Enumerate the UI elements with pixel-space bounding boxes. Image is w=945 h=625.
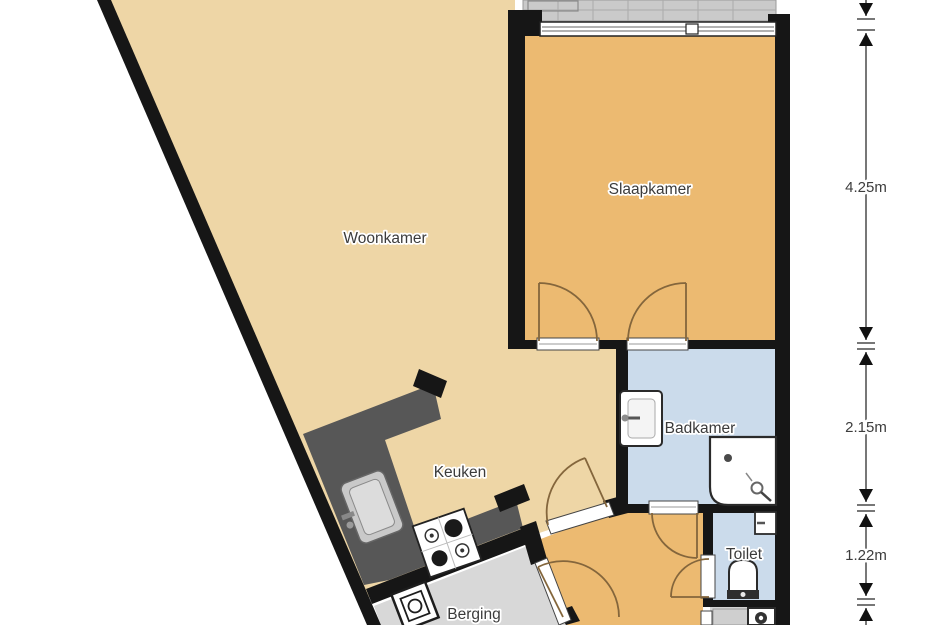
- right-outer-wall: [775, 14, 790, 625]
- arrow-down-icon: [859, 327, 873, 340]
- room-label-berging: Berging: [447, 606, 500, 623]
- balcony-icon: [523, 0, 776, 21]
- slaapkamer-left-wall: [508, 10, 525, 349]
- slaapkamer-top-corner-wall: [508, 10, 542, 36]
- room-label-slaapkamer: Slaapkamer: [609, 181, 692, 198]
- dimension-label-2: 2.15m: [845, 419, 887, 436]
- room-label-woonkamer: Woonkamer: [343, 230, 426, 247]
- toilet-bowl-icon: [727, 560, 759, 599]
- appliance-icon: [713, 608, 775, 625]
- shower-icon: [710, 437, 776, 505]
- window-icon: [540, 22, 776, 36]
- room-label-badkamer: Badkamer: [665, 420, 736, 437]
- dimension-label-3: 1.22m: [845, 547, 887, 564]
- floorplan-page: Woonkamer Slaapkamer Keuken Badkamer Toi…: [0, 0, 945, 625]
- bathroom-sink-icon: [620, 391, 662, 446]
- dimension-label-1: 4.25m: [845, 179, 887, 196]
- toilet-door-threshold: [701, 555, 715, 598]
- toilet-bottom-wall: [703, 600, 790, 607]
- arrow-up-icon: [859, 514, 873, 527]
- arrow-up-icon: [859, 608, 873, 621]
- arrow-down-icon: [859, 489, 873, 502]
- arrow-down-icon: [859, 3, 873, 16]
- window-handle: [686, 24, 698, 34]
- washok-door-threshold: [701, 611, 712, 625]
- hand-basin-icon: [755, 512, 776, 534]
- arrow-up-icon: [859, 352, 873, 365]
- room-label-keuken: Keuken: [434, 464, 487, 481]
- arrow-up-icon: [859, 33, 873, 46]
- arrow-down-icon: [859, 583, 873, 596]
- room-label-toilet: Toilet: [726, 546, 763, 563]
- dimension-column: [857, 0, 875, 625]
- floorplan-drawing: Woonkamer Slaapkamer Keuken Badkamer Toi…: [0, 0, 945, 625]
